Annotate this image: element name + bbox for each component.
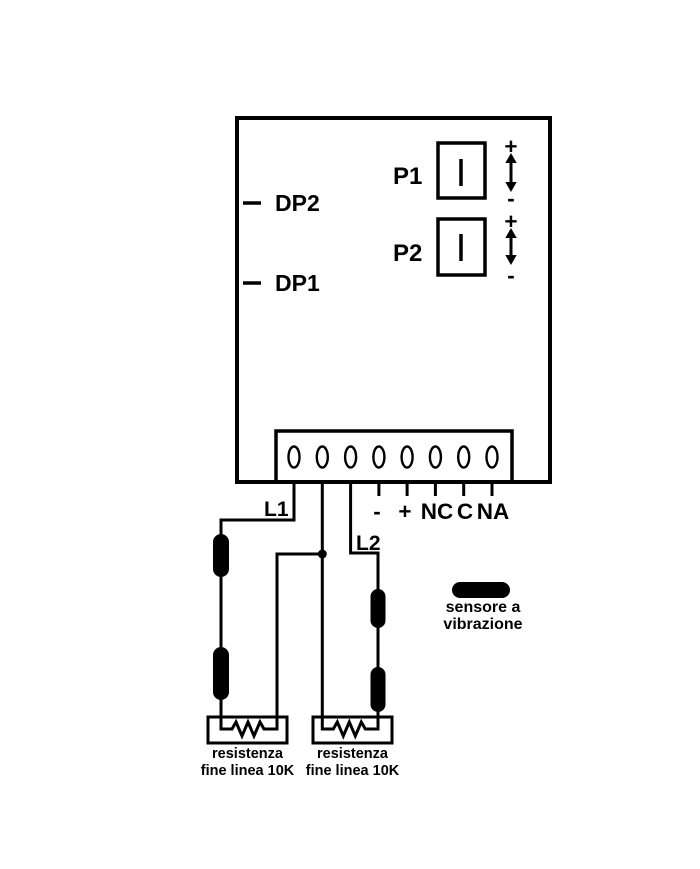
legend-sensor-pill-icon — [452, 582, 510, 598]
p1-label: P1 — [393, 163, 422, 190]
terminal-label-plus: + — [398, 499, 411, 524]
terminal-block-outline — [276, 431, 512, 482]
p2-minus-label: - — [507, 263, 515, 288]
terminal-label-na: NA — [477, 499, 510, 524]
zone-l1-label: L1 — [264, 498, 289, 521]
terminal-label-nc: NC — [421, 499, 454, 524]
eol-resistor-caption-line2: fine linea 10K — [306, 763, 400, 779]
wiring-diagram: DP2 DP1 P1 + - P2 + - - + NC C NA L1 L2 — [0, 0, 700, 869]
wiring-diagram-canvas: DP2 DP1 P1 + - P2 + - - + NC C NA L1 L2 — [0, 0, 700, 869]
vibration-sensor — [213, 647, 229, 700]
vibration-sensor — [213, 534, 229, 577]
dp2-label: DP2 — [275, 190, 320, 216]
terminal-hole — [487, 447, 498, 468]
eol-resistor-caption-line1: resistenza — [317, 746, 389, 762]
terminal-hole — [430, 447, 441, 468]
p2-label: P2 — [393, 240, 422, 267]
terminal-hole — [402, 447, 413, 468]
terminal-hole — [345, 447, 356, 468]
terminal-label-minus: - — [373, 499, 381, 524]
eol-resistor-caption-line1: resistenza — [212, 746, 284, 762]
wire-common-branch — [277, 554, 322, 718]
eol-resistor-symbol — [221, 717, 277, 736]
vibration-sensor — [371, 589, 386, 628]
terminal-hole — [317, 447, 328, 468]
eol-resistor-caption-line2: fine linea 10K — [201, 763, 295, 779]
terminal-hole — [289, 447, 300, 468]
terminal-label-c: C — [457, 499, 473, 524]
legend-sensor-label-line2: vibrazione — [443, 616, 522, 633]
legend-sensor-label-line1: sensore a — [446, 599, 521, 616]
p1-minus-label: - — [507, 186, 515, 211]
eol-resistor-symbol — [322, 717, 378, 736]
wire-junction-dot — [318, 550, 327, 559]
vibration-sensor — [371, 667, 386, 712]
zone-l2-label: L2 — [356, 532, 381, 555]
dp1-label: DP1 — [275, 270, 320, 296]
terminal-hole — [458, 447, 469, 468]
terminal-hole — [373, 447, 384, 468]
